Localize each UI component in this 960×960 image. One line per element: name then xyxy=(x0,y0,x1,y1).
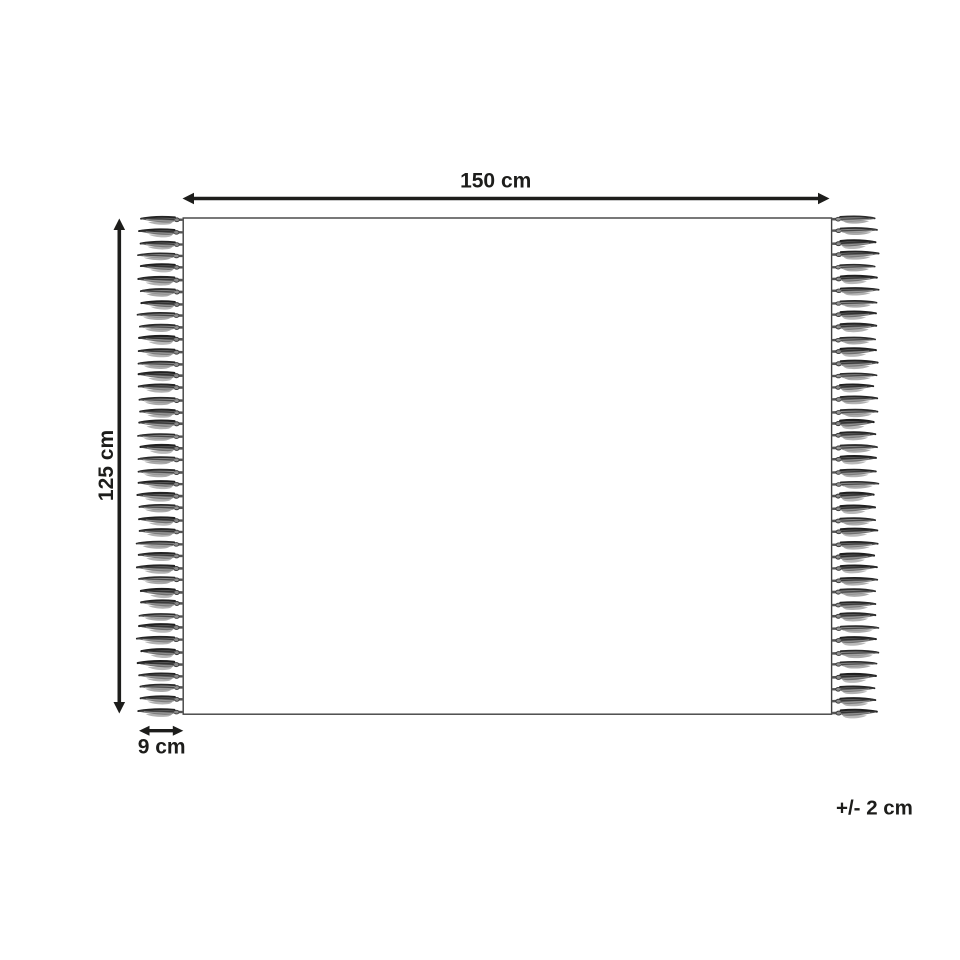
svg-text:9 cm: 9 cm xyxy=(138,736,186,759)
svg-text:+/- 2 cm: +/- 2 cm xyxy=(836,797,913,820)
svg-text:125 cm: 125 cm xyxy=(95,430,118,501)
svg-text:150 cm: 150 cm xyxy=(460,170,531,193)
